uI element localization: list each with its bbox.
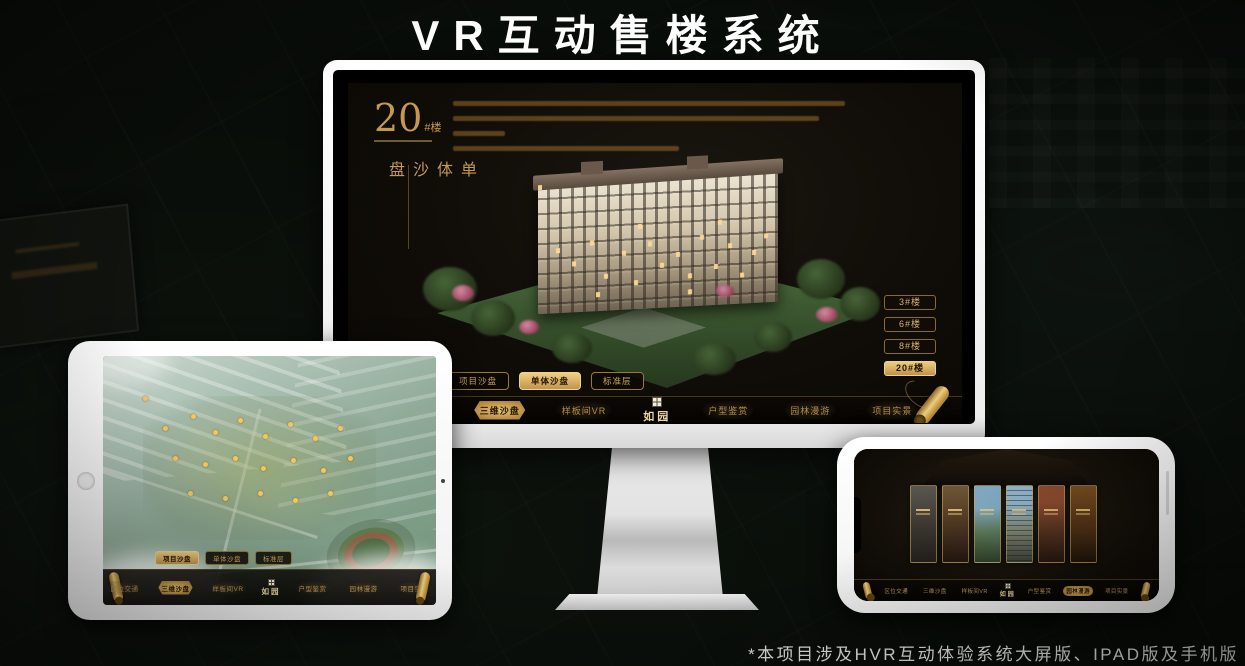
logo-text: 如园	[262, 586, 281, 597]
nav-item-floorplans[interactable]: 户型鉴赏	[699, 401, 757, 420]
ipad-nav-item-garden-tour[interactable]: 园林漫游	[345, 581, 383, 595]
building-number-badges[interactable]	[143, 396, 148, 401]
scene-card-lounge[interactable]	[1070, 485, 1097, 563]
brand-logo[interactable]: 如园	[643, 397, 671, 424]
phone-nav-item-project-photos[interactable]: 项目实景	[1102, 586, 1132, 596]
ipad-nav-item-floorplans[interactable]: 户型鉴赏	[294, 581, 332, 595]
logo-text: 如园	[1000, 589, 1016, 598]
sub-tab-standard-floor[interactable]: 标准层	[591, 372, 644, 390]
ipad-sub-tab-project-sandtable[interactable]: 项目沙盘	[155, 551, 199, 565]
floor-button-3[interactable]: 3#楼	[884, 295, 936, 310]
nav-item-project-photos[interactable]: 项目实景	[863, 401, 921, 420]
phone-notch	[854, 497, 861, 553]
floor-button-6[interactable]: 6#楼	[884, 317, 936, 332]
background-city-blocks	[989, 58, 1245, 208]
estate-area	[143, 396, 376, 540]
phone-side-button[interactable]	[1166, 471, 1169, 515]
footnote-text: *本项目涉及HVR互动体验系统大屏版、IPAD版及手机版	[748, 640, 1239, 665]
ipad-nav-item-showroom-vr[interactable]: 样板间VR	[207, 581, 248, 595]
tree	[754, 322, 792, 352]
roof-tower	[687, 156, 709, 170]
tree	[552, 333, 592, 363]
ipad-camera-icon	[441, 479, 445, 483]
monitor-stand-neck	[597, 446, 723, 598]
phone-nav-item-garden-tour[interactable]: 园林漫游	[1063, 586, 1093, 596]
background-plaque	[0, 204, 139, 349]
ipad-home-button[interactable]	[77, 472, 95, 490]
floor-button-group: 3#楼 6#楼 8#楼 20#楼	[884, 295, 936, 376]
ipad-nav-bar: 区位交通 三维沙盘 样板间VR 如园 户型鉴赏 园林漫游 项目实景	[103, 569, 436, 605]
logo-text: 如园	[643, 408, 671, 424]
seal-icon	[268, 579, 275, 586]
building-3d-model[interactable]	[418, 141, 898, 393]
scroll-handle-left-icon[interactable]	[862, 581, 873, 599]
tree	[797, 259, 845, 299]
nav-item-3d-sandtable[interactable]: 三维沙盘	[471, 401, 529, 420]
building-header: 20#楼 单体沙盘	[374, 99, 441, 142]
intro-text-line	[453, 116, 819, 121]
floor-button-20[interactable]: 20#楼	[884, 361, 936, 376]
ipad-brand-logo[interactable]: 如园	[262, 579, 281, 597]
intro-text-line	[453, 101, 845, 106]
page-title: VR互动售楼系统	[0, 2, 1245, 63]
tree	[840, 287, 880, 321]
scene-card-autumn[interactable]	[1038, 485, 1065, 563]
ipad-sub-tab-single-sandtable[interactable]: 单体沙盘	[205, 551, 249, 565]
lit-windows	[538, 185, 542, 190]
roof-tower	[581, 161, 603, 175]
residential-building	[538, 173, 778, 314]
nav-item-showroom-vr[interactable]: 样板间VR	[553, 401, 616, 420]
floor-button-8[interactable]: 8#楼	[884, 339, 936, 354]
scene-card-interior[interactable]	[942, 485, 969, 563]
flower-bed	[452, 285, 474, 301]
ipad-sub-tab-bar: 项目沙盘 单体沙盘 标准层	[155, 551, 292, 565]
scene-card-garden[interactable]	[974, 485, 1001, 563]
phone-nav-item-location[interactable]: 区位交通	[881, 586, 911, 596]
nav-item-garden-tour[interactable]: 园林漫游	[781, 401, 839, 420]
phone-nav-item-floorplans[interactable]: 户型鉴赏	[1025, 586, 1055, 596]
scroll-handle-right-icon[interactable]	[1140, 581, 1151, 599]
ipad-nav-item-location[interactable]: 区位交通	[105, 581, 143, 595]
phone-nav-bar: 区位交通 三维沙盘 样板间VR 如园 户型鉴赏 园林漫游 项目实景	[854, 579, 1159, 601]
sub-tab-bar: 项目沙盘 单体沙盘 标准层	[447, 372, 644, 390]
flower-bed	[519, 320, 539, 334]
seal-icon	[652, 397, 662, 407]
ipad-device: 项目沙盘 单体沙盘 标准层 区位交通 三维沙盘 样板间VR 如园 户型鉴赏 园林…	[68, 341, 452, 620]
phone-brand-logo[interactable]: 如园	[1000, 583, 1016, 598]
sub-tab-project-sandtable[interactable]: 项目沙盘	[447, 372, 509, 390]
sub-tab-single-sandtable[interactable]: 单体沙盘	[519, 372, 581, 390]
scene-card-strip	[910, 485, 1097, 563]
phone-nav-item-3d-sandtable[interactable]: 三维沙盘	[920, 586, 950, 596]
scene-card-courtyard[interactable]	[910, 485, 937, 563]
intro-text-line	[453, 131, 505, 136]
scene-card-building[interactable]	[1006, 485, 1033, 563]
tree	[471, 300, 515, 336]
tree	[692, 343, 736, 375]
building-roof	[533, 159, 783, 192]
flower-bed	[716, 285, 734, 297]
ipad-screen: 项目沙盘 单体沙盘 标准层 区位交通 三维沙盘 样板间VR 如园 户型鉴赏 园林…	[103, 356, 436, 605]
ipad-nav-item-3d-sandtable[interactable]: 三维沙盘	[156, 581, 194, 595]
building-number: 20	[374, 96, 422, 140]
phone-device: 区位交通 三维沙盘 样板间VR 如园 户型鉴赏 园林漫游 项目实景	[837, 437, 1175, 613]
header-divider-line	[408, 165, 409, 249]
building-unit: #楼	[424, 122, 441, 134]
phone-nav-item-showroom-vr[interactable]: 样板间VR	[959, 586, 991, 596]
phone-screen: 区位交通 三维沙盘 样板间VR 如园 户型鉴赏 园林漫游 项目实景	[854, 449, 1159, 601]
ipad-sub-tab-standard-floor[interactable]: 标准层	[255, 551, 292, 565]
